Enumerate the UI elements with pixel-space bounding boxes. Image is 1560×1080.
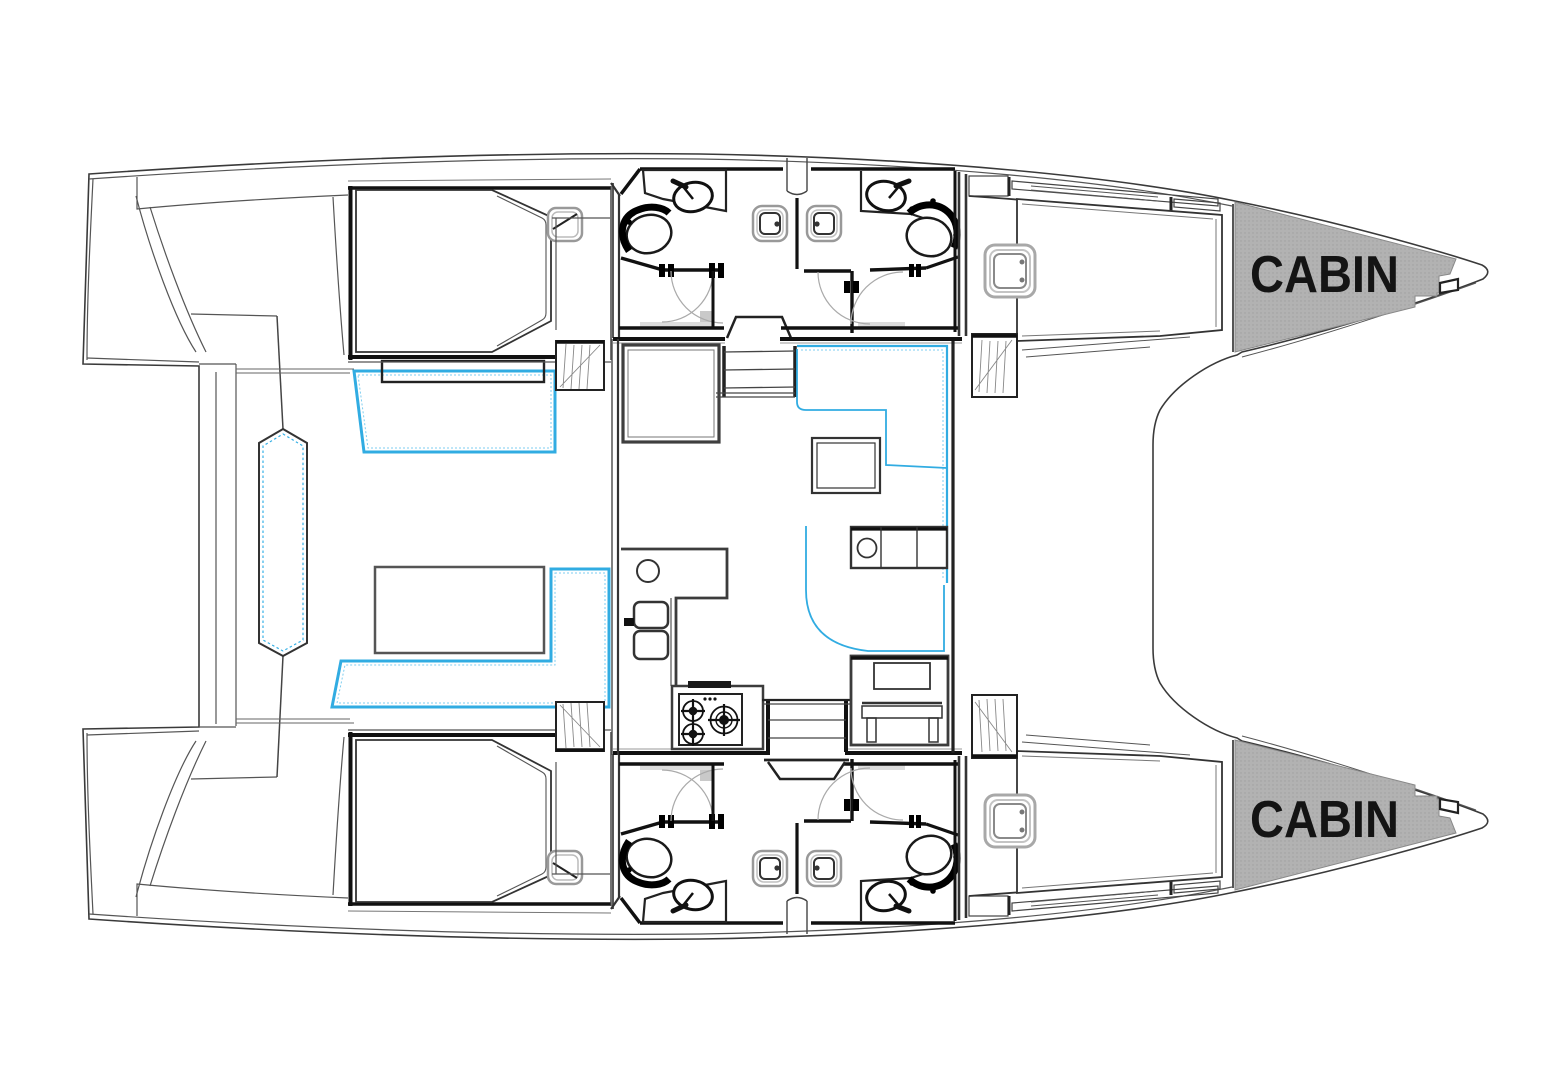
svg-text:CABIN: CABIN <box>1250 791 1399 849</box>
svg-text:CABIN: CABIN <box>1250 246 1399 304</box>
